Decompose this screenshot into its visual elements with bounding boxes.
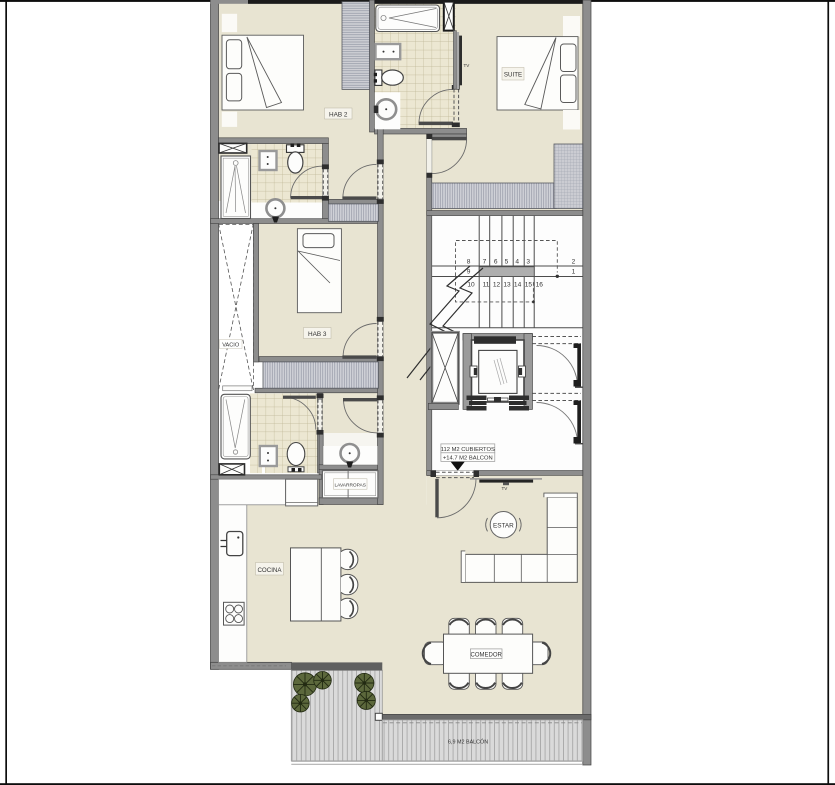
svg-text:1: 1 [572, 269, 576, 276]
svg-text:7: 7 [483, 258, 487, 265]
svg-text:14: 14 [514, 281, 522, 288]
svg-text:13: 13 [503, 281, 511, 288]
svg-text:ESTAR: ESTAR [493, 522, 514, 529]
svg-text:SUITE: SUITE [504, 72, 522, 79]
svg-text:6,9 M2 BALCÓN: 6,9 M2 BALCÓN [448, 739, 488, 746]
svg-text:LAVARROPAS: LAVARROPAS [334, 483, 365, 489]
svg-text:5: 5 [505, 258, 509, 265]
svg-text:COCINA: COCINA [257, 567, 282, 574]
svg-text:VACIO: VACIO [222, 343, 240, 349]
svg-text:10: 10 [467, 281, 475, 288]
svg-text:HAB 3: HAB 3 [308, 331, 327, 338]
svg-text:15: 15 [525, 281, 533, 288]
svg-text:8: 8 [467, 258, 471, 265]
svg-text:3: 3 [526, 258, 530, 265]
svg-text:112 M2 CUBIERTOS: 112 M2 CUBIERTOS [441, 447, 495, 453]
svg-text:HAB 2: HAB 2 [329, 111, 348, 118]
svg-text:4: 4 [515, 258, 519, 265]
svg-text:6: 6 [494, 258, 498, 265]
svg-text:12: 12 [493, 281, 501, 288]
svg-text:TV: TV [502, 486, 509, 491]
svg-text:9: 9 [467, 269, 471, 276]
svg-text:TV: TV [464, 63, 471, 68]
svg-text:16: 16 [536, 281, 544, 288]
svg-text:COMEDOR: COMEDOR [471, 652, 503, 658]
svg-text:2: 2 [572, 258, 576, 265]
svg-text:11: 11 [483, 281, 490, 288]
svg-text:+14.7 M2 BALCON: +14.7 M2 BALCON [443, 456, 493, 462]
